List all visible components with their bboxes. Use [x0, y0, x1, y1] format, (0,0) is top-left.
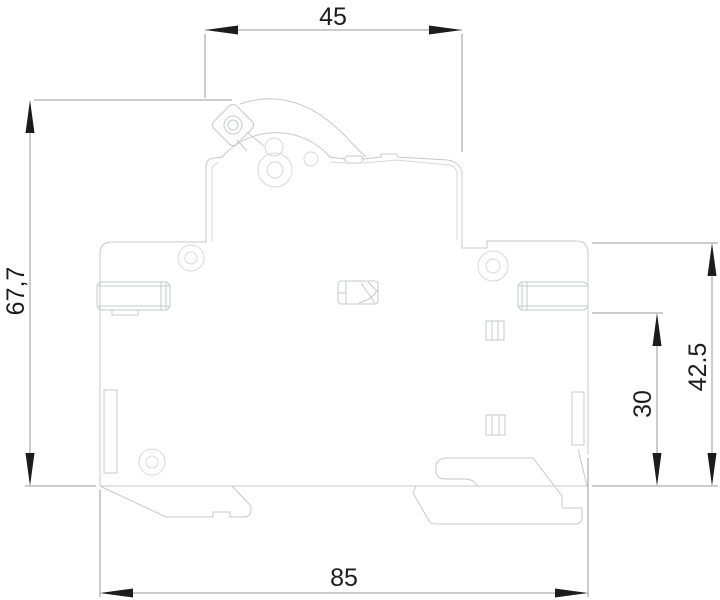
- dim-label-left-height: 67,7: [2, 267, 30, 316]
- arrowhead-right: [429, 26, 462, 35]
- side-wall-slots: [104, 390, 584, 473]
- arrowhead-left: [100, 589, 133, 598]
- din-rail-clip: [100, 458, 582, 524]
- toggle-lever: [210, 99, 366, 187]
- arrowhead-down: [708, 453, 717, 486]
- arrowhead-down: [26, 453, 35, 486]
- dimension-right-height: 42.5: [592, 243, 718, 486]
- dimension-top-width: 45: [205, 3, 462, 152]
- arrowhead-down: [653, 453, 662, 486]
- breaker-body-outline: [100, 133, 588, 486]
- arrowhead-right: [555, 589, 588, 598]
- case-rivets: [139, 245, 508, 475]
- dim-label-right-inner-height: 30: [629, 390, 657, 418]
- cover-slot: [345, 156, 363, 163]
- terminal-right: [518, 282, 588, 310]
- center-marking: [338, 281, 378, 304]
- arrowhead-left: [205, 26, 238, 35]
- dimension-bottom-width: 85: [100, 458, 588, 598]
- toggle-knob: [210, 102, 255, 147]
- dim-label-top-width: 45: [319, 3, 347, 31]
- arrowhead-up: [26, 100, 35, 133]
- vents: [486, 321, 505, 435]
- arrowhead-up: [708, 243, 717, 276]
- arrowhead-up: [653, 313, 662, 346]
- drawing-canvas: 45 67,7 42.5 30 85: [0, 0, 720, 600]
- terminal-left: [97, 282, 170, 315]
- dim-label-bottom-width: 85: [330, 564, 358, 592]
- dimension-right-inner-height: 30: [592, 313, 663, 486]
- release-lever-edge: [578, 449, 587, 486]
- technical-drawing: 45 67,7 42.5 30 85: [0, 0, 720, 600]
- dim-label-right-height: 42.5: [684, 343, 712, 392]
